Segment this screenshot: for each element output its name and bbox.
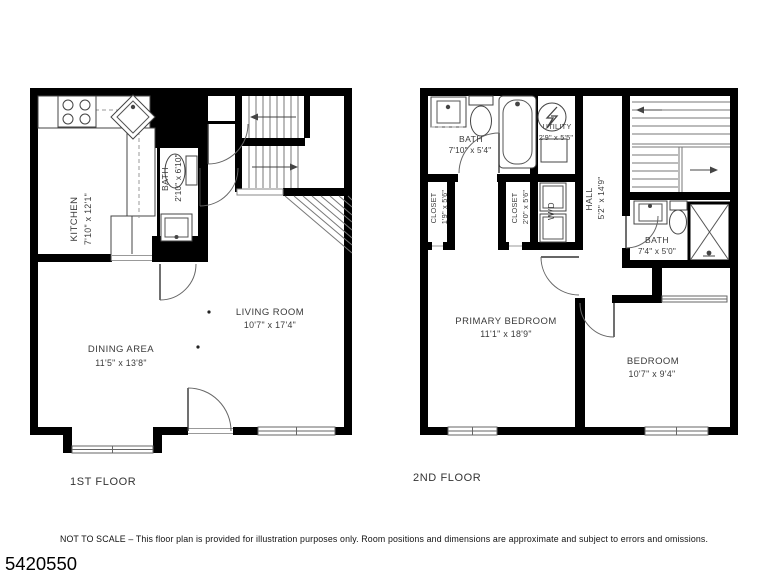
floor-plan-drawing: KITCHEN 7'10" x 12'1" BATH 2'10" x 6'10"… (0, 0, 768, 576)
closet-dims: 2'0" x 5'6" (521, 190, 530, 225)
stair-arrow-down2-icon (710, 167, 718, 174)
bath2-label: BATH (645, 235, 669, 245)
door-bedroom (580, 303, 614, 337)
bedroom-label: BEDROOM (627, 356, 679, 367)
window-living (258, 427, 335, 435)
front-door (188, 388, 233, 434)
bathtub-icon (499, 96, 536, 168)
listing-id: 5420550 (5, 553, 77, 574)
shower-icon (689, 203, 730, 261)
dining-area-dims: 11'5" x 13'8" (95, 358, 147, 368)
understair-hatch (285, 196, 352, 253)
stair-arrow-down-icon (290, 164, 298, 171)
closet-label: CLOSET (510, 192, 519, 223)
second-floor-title: 2ND FLOOR (413, 472, 481, 484)
window-primary (448, 427, 497, 435)
kitchen-opening (112, 254, 152, 262)
bath-sink-icon (161, 214, 192, 241)
stove-icon (58, 96, 96, 127)
primary-bedroom-dims: 11'1" x 18'9" (480, 329, 532, 339)
primary-bedroom-label: PRIMARY BEDROOM (455, 316, 556, 327)
bath-upper-label: BATH (459, 134, 483, 144)
hall-dims: 5'2" x 14'9" (597, 177, 606, 220)
toilet2-icon (670, 201, 688, 234)
dining-area-label: DINING AREA (88, 344, 154, 355)
floor-plan-page: KITCHEN 7'10" x 12'1" BATH 2'10" x 6'10"… (0, 0, 768, 576)
bath2-dims: 7'4" x 5'0" (638, 247, 676, 256)
living-room-dims: 10'7" x 17'4" (244, 320, 296, 330)
utility-dims: 2'9" x 5'5" (539, 133, 574, 142)
toilet-icon-2f (469, 96, 493, 136)
bath1-dims: 2'10" x 6'10" (174, 154, 183, 202)
second-floor-plan: BATH 7'10" x 5'4" UTILITY 2'9" x 5'5" CL… (413, 88, 738, 484)
vanity-sink-icon (431, 97, 466, 127)
chimney-chase (150, 96, 200, 148)
closet-small-dims: 1'9" x 5'6" (440, 190, 449, 225)
utility-label: UTILITY (543, 122, 572, 131)
kitchen-label: KITCHEN (69, 197, 80, 242)
first-floor-title: 1ST FLOOR (70, 476, 136, 488)
kitchen-dims: 7'10" x 12'1" (83, 193, 93, 245)
stair-arrow-up-icon (250, 114, 258, 121)
door-bath-first (160, 264, 196, 300)
door-primary-bedroom (541, 257, 579, 295)
bath-upper-dims: 7'10" x 5'4" (449, 146, 492, 155)
first-floor-plan: KITCHEN 7'10" x 12'1" BATH 2'10" x 6'10"… (30, 88, 352, 488)
stairs-second-floor (632, 102, 730, 192)
stair-arrow-up2-icon (636, 107, 644, 114)
window-bay (72, 446, 153, 453)
disclaimer-text: NOT TO SCALE – This floor plan is provid… (60, 534, 708, 544)
hall-label: HALL (584, 187, 594, 210)
vanity-sink2-icon (634, 201, 667, 224)
bedroom-dims: 10'7" x 9'4" (629, 369, 676, 379)
window-bedroom-top (662, 296, 727, 302)
window-bedroom-bottom (645, 427, 708, 435)
living-room-label: LIVING ROOM (236, 307, 304, 318)
wd-label: W/D (546, 202, 556, 220)
closet-small-label: CLOSET (429, 192, 438, 223)
bath1-label: BATH (160, 167, 170, 191)
